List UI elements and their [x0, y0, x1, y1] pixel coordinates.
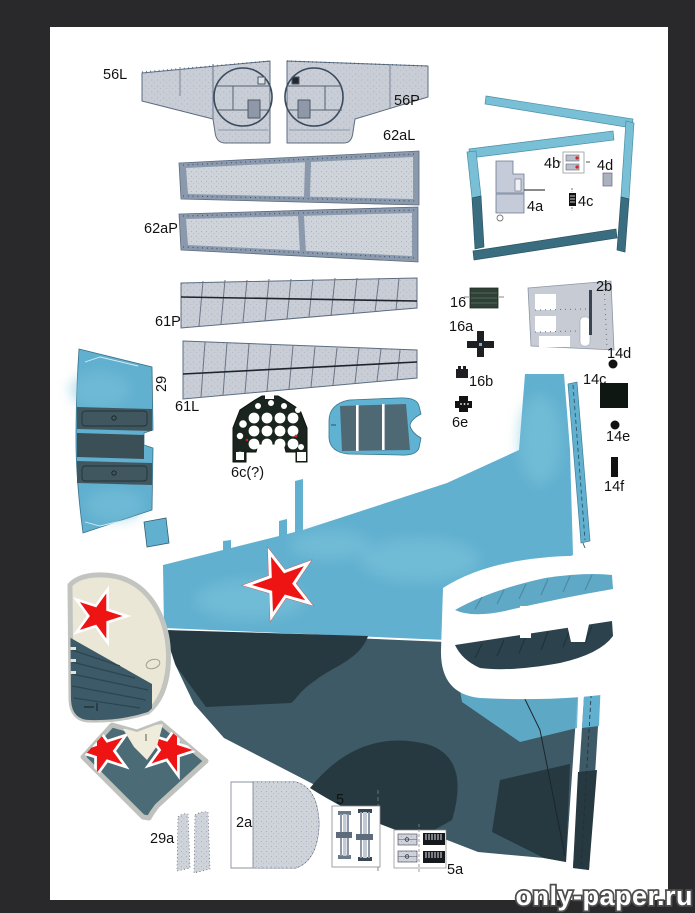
- label-6c: 6c(?): [231, 465, 264, 481]
- label-2b: 2b: [596, 279, 612, 295]
- label-16b: 16b: [469, 374, 493, 390]
- label-56L: 56L: [103, 67, 127, 83]
- part-5a: [394, 824, 446, 874]
- label-14e: 14e: [606, 429, 630, 445]
- label-29: 29: [154, 376, 170, 392]
- part-headrest: [329, 398, 421, 455]
- label-16a: 16a: [449, 319, 474, 335]
- label-16: 16: [450, 295, 466, 311]
- part-elevator-leaves: [441, 556, 623, 699]
- label-6e: 6e: [452, 415, 468, 431]
- label-2a: 2a: [236, 815, 253, 831]
- label-4c: 4c: [578, 194, 593, 210]
- label-56P: 56P: [394, 93, 420, 109]
- part-29: [70, 349, 153, 533]
- part-4d: [603, 173, 612, 186]
- watermark: only-paper.ru: [515, 881, 693, 911]
- label-4a: 4a: [527, 199, 544, 215]
- label-14f: 14f: [604, 479, 625, 495]
- label-61L: 61L: [175, 399, 199, 415]
- label-5: 5: [336, 792, 344, 808]
- label-14c: 14c: [583, 372, 606, 388]
- label-4d: 4d: [597, 158, 613, 174]
- label-61P: 61P: [155, 314, 181, 330]
- viewer-stage: 56L 56P 62aL 62aP 61P 29 61L 6c(?) 4a 4b…: [0, 0, 695, 913]
- part-small-blue-tab: [144, 518, 169, 547]
- label-14d: 14d: [607, 346, 631, 362]
- label-4b: 4b: [544, 156, 560, 172]
- label-62aL: 62aL: [383, 128, 415, 144]
- sheet-svg: 56L 56P 62aL 62aP 61P 29 61L 6c(?) 4a 4b…: [0, 0, 695, 913]
- label-62aP: 62aP: [144, 221, 178, 237]
- part-tail-fin: [60, 575, 169, 730]
- label-29a: 29a: [150, 831, 175, 847]
- label-5a: 5a: [447, 862, 464, 878]
